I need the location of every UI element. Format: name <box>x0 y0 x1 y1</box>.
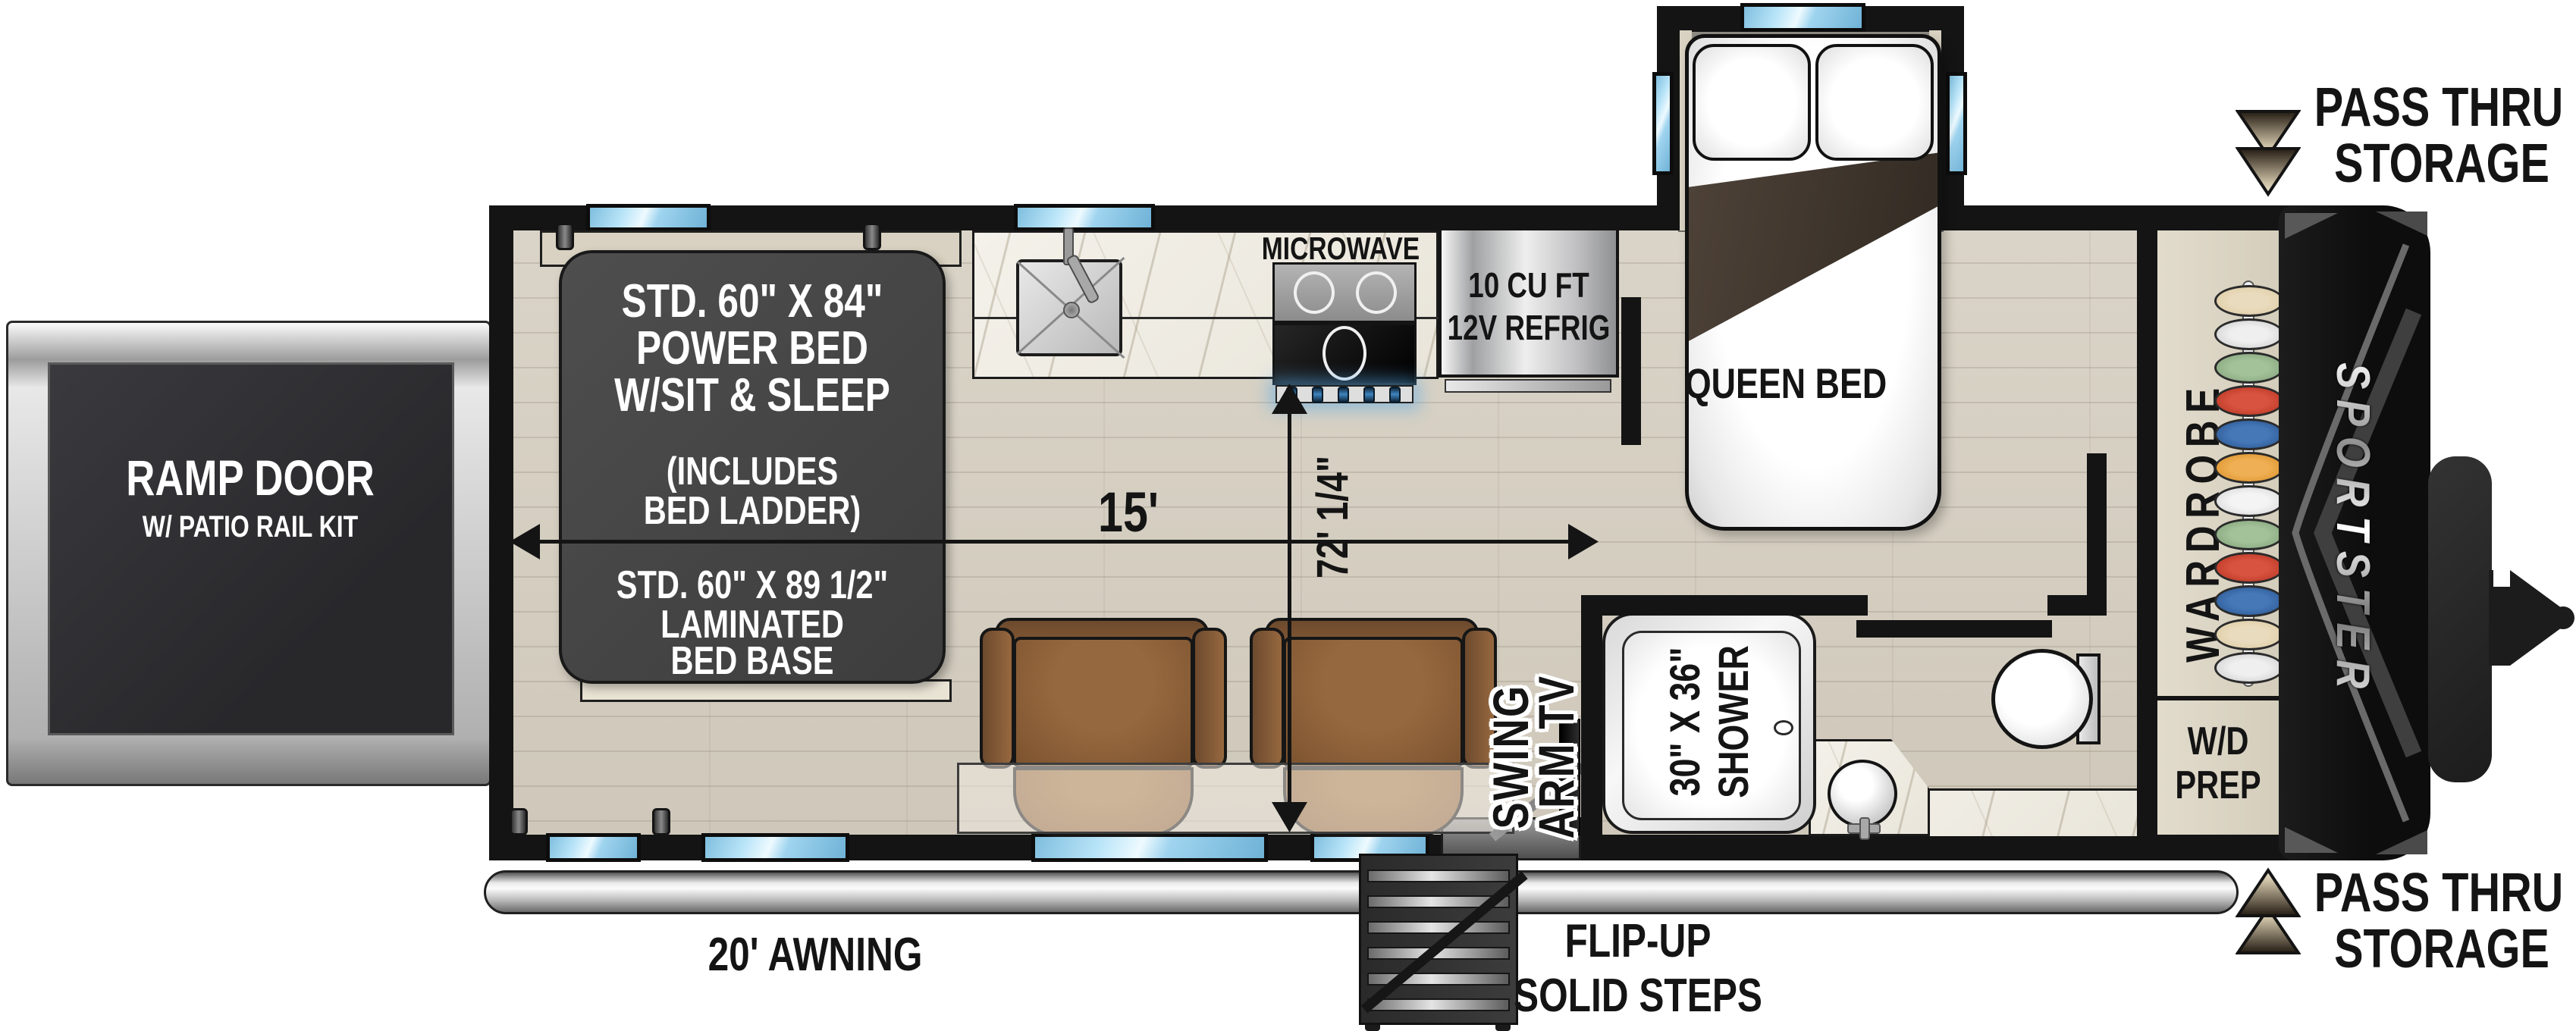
bed-base-label-3: BED BASE <box>671 641 834 681</box>
pass-thru-bottom-label-2: STORAGE <box>2334 922 2549 976</box>
pillow-icon <box>1693 44 1811 161</box>
ramp-door-title: RAMP DOOR <box>126 453 375 503</box>
window-over-kitchen <box>1014 204 1155 231</box>
hanger-icon <box>2214 485 2284 517</box>
hanger-icon <box>2214 352 2284 384</box>
burner-icon <box>1294 271 1335 314</box>
kitchen-sink-icon <box>1016 259 1122 356</box>
hanger-icon <box>2214 285 2284 317</box>
burner-icon <box>1323 326 1366 381</box>
bed-post-icon <box>863 223 881 250</box>
hitch-coupler-icon <box>2487 553 2576 682</box>
wd-prep-label-1: W/D <box>2188 722 2249 761</box>
power-bed-label-3: W/SIT & SLEEP <box>614 372 890 419</box>
window-bottom-1 <box>546 833 641 862</box>
microwave-label: MICROWAVE <box>1262 233 1420 265</box>
ramp-door <box>6 321 491 786</box>
dim-label-width: 72' 1/4" <box>1311 456 1355 578</box>
power-bed-label-1: STD. 60" X 84" <box>622 278 883 325</box>
dim-line-width <box>1288 394 1291 823</box>
steps-icon <box>1359 854 1518 1025</box>
power-bed-label-2: POWER BED <box>636 325 868 372</box>
bath-pocket-door <box>1856 620 2052 638</box>
bath-wall-top <box>1581 595 1868 616</box>
hanger-icon <box>2214 452 2284 484</box>
hanger-icon <box>2214 418 2284 450</box>
bath-wall-left <box>1581 595 1602 836</box>
window-bottom-3 <box>1031 833 1268 862</box>
queen-slide-window-left <box>1652 72 1674 175</box>
pass-thru-bottom-arrows-icon <box>2236 867 2301 955</box>
hanger-icon <box>2214 318 2284 350</box>
pass-thru-top-label-2: STORAGE <box>2334 136 2549 191</box>
wall-kitchen-bedroom <box>1621 297 1641 445</box>
refrigerator-label-1: 10 CU FT <box>1468 268 1589 302</box>
wardrobe-label: WARDROBE <box>2180 381 2227 663</box>
pass-thru-top-label-1: PASS THRU <box>2314 80 2564 135</box>
queen-slide-window-top <box>1740 3 1865 32</box>
bed-post-icon <box>556 223 574 250</box>
bedroom-wall-right <box>2087 453 2107 616</box>
footrest-overlay <box>957 763 1514 834</box>
hanger-icon <box>2214 619 2284 650</box>
power-bed-label-5: BED LADDER) <box>644 491 861 531</box>
bed-base-label-1: STD. 60" X 89 1/2" <box>617 566 889 605</box>
dim-label-length: 15' <box>1098 484 1159 541</box>
refrigerator-base <box>1445 379 1611 393</box>
steps-label-2: SOLID STEPS <box>1514 973 1762 1020</box>
ramp-door-panel <box>48 362 454 735</box>
queen-slide-window-right <box>1946 72 1967 175</box>
bath-faucet-icon <box>1859 817 1870 840</box>
wd-prep-label-2: PREP <box>2175 766 2261 805</box>
pillow-icon <box>1815 44 1934 161</box>
hitch-box-icon <box>2428 456 2492 782</box>
toilet-icon <box>1991 649 2093 749</box>
power-bed-label-4: (INCLUDES <box>667 452 838 491</box>
shower-label-1: 30" X 36" <box>1664 647 1706 797</box>
steps-foot-icon <box>1495 1025 1511 1031</box>
wall-top-right-section <box>1960 205 2305 230</box>
window-over-bed <box>586 204 711 231</box>
brand-label: SPORTSTER <box>2329 362 2376 699</box>
hanger-icon <box>2214 552 2284 584</box>
shower-label-2: SHOWER <box>1712 645 1755 798</box>
queen-bed-label: QUEEN BED <box>1685 362 1887 405</box>
wd-prep-divider <box>2156 696 2280 700</box>
pass-thru-top-arrows-icon <box>2236 109 2301 197</box>
bed-post-icon <box>652 808 670 835</box>
wall-left <box>489 205 513 860</box>
steps-foot-icon <box>1365 1025 1380 1031</box>
hanger-icon <box>2214 585 2284 617</box>
refrigerator-label-2: 12V REFRIG <box>1448 310 1611 345</box>
window-bottom-2 <box>701 833 849 862</box>
awning-label: 20' AWNING <box>708 932 923 979</box>
hanger-icon <box>2214 385 2284 417</box>
bed-post-icon <box>510 808 528 835</box>
ramp-door-subtitle: W/ PATIO RAIL KIT <box>143 512 358 542</box>
rv-floorplan: RAMP DOOR W/ PATIO RAIL KIT QUEEN BED ST… <box>0 0 2576 1031</box>
steps-label-1: FLIP-UP <box>1565 918 1712 965</box>
pass-thru-bottom-label-1: PASS THRU <box>2314 866 2564 920</box>
shower-drain-icon <box>1774 720 1793 735</box>
swing-tv-label-2: ARM TV <box>1531 675 1581 839</box>
hanger-icon <box>2214 652 2284 684</box>
hanger-icon <box>2214 519 2284 550</box>
dim-line-length <box>531 540 1579 544</box>
burner-icon <box>1356 271 1397 314</box>
wardrobe-wall-left <box>2137 230 2157 835</box>
